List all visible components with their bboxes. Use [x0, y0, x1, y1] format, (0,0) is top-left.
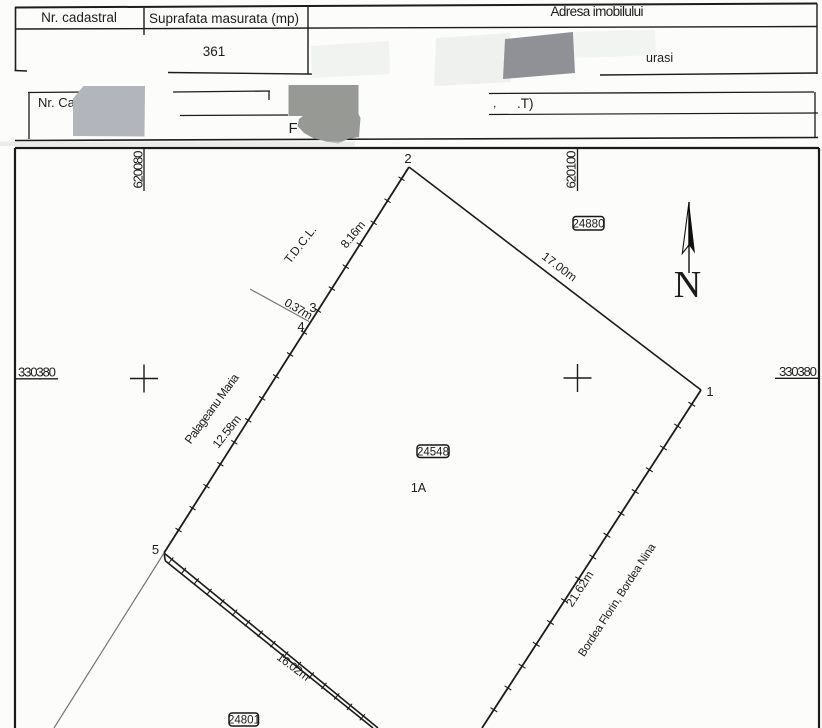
svg-text:24880: 24880 — [573, 219, 605, 231]
svg-text:N: N — [674, 264, 701, 306]
svg-text:361: 361 — [203, 44, 226, 59]
svg-text:4: 4 — [297, 319, 304, 334]
svg-text:.T): .T) — [517, 96, 534, 111]
svg-text:1: 1 — [706, 384, 713, 399]
svg-text:Nr. Ca: Nr. Ca — [38, 95, 76, 110]
svg-text:620080: 620080 — [130, 151, 145, 189]
svg-text:5: 5 — [152, 542, 159, 557]
svg-text:330380: 330380 — [779, 364, 817, 379]
svg-text:Adresa imobilului: Adresa imobilului — [551, 4, 644, 19]
svg-text:Nr. cadastral: Nr. cadastral — [41, 10, 117, 25]
svg-text:24801: 24801 — [228, 715, 260, 727]
svg-text:,: , — [493, 96, 496, 110]
svg-text:330380: 330380 — [18, 365, 56, 380]
svg-text:F: F — [289, 120, 298, 137]
svg-text:24548: 24548 — [417, 447, 449, 459]
svg-text:1A: 1A — [411, 481, 427, 495]
svg-text:2: 2 — [404, 151, 411, 166]
svg-text:620100: 620100 — [563, 151, 578, 189]
svg-text:urasi: urasi — [646, 51, 673, 65]
svg-text:Suprafata masurata (mp): Suprafata masurata (mp) — [149, 11, 299, 26]
